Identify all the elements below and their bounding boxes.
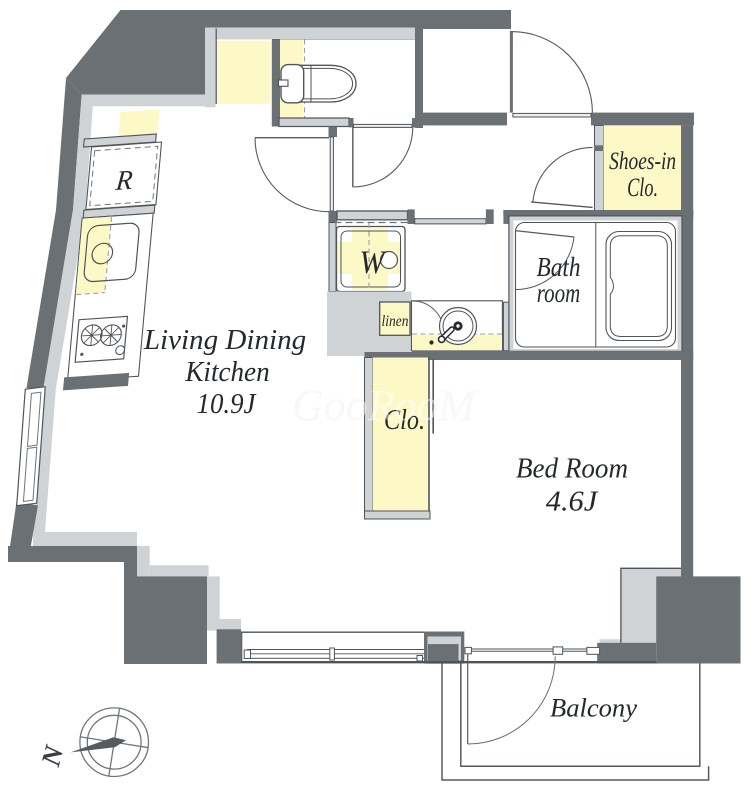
svg-text:GooRooM: GooRooM: [292, 381, 478, 430]
svg-text:linen: linen: [382, 313, 409, 330]
svg-text:Kitchen: Kitchen: [184, 357, 269, 388]
svg-text:Bed Room: Bed Room: [516, 453, 628, 485]
svg-text:Clo.: Clo.: [627, 173, 658, 202]
svg-text:Living Dining: Living Dining: [143, 325, 306, 356]
svg-text:4.6J: 4.6J: [546, 486, 599, 518]
svg-text:room: room: [537, 278, 581, 308]
svg-text:Balcony: Balcony: [550, 694, 637, 723]
svg-text:W: W: [360, 245, 387, 281]
svg-text:R: R: [114, 165, 134, 197]
svg-text:10.9J: 10.9J: [197, 389, 257, 420]
svg-text:Shoes-in: Shoes-in: [609, 148, 676, 175]
